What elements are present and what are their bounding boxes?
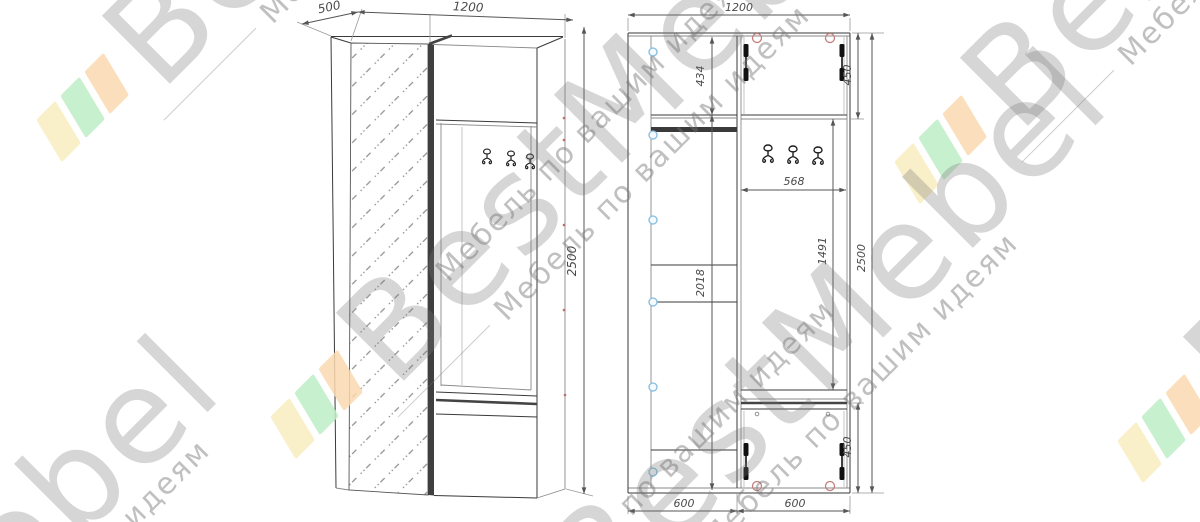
dim-niche-height-label: 1491 bbox=[816, 237, 829, 265]
top-cabinet bbox=[741, 34, 847, 120]
mirror-door bbox=[349, 43, 428, 495]
perspective-dimensions: 500 1200 2500 bbox=[297, 0, 593, 496]
dim-bottom-cabinet-height-label: 450 bbox=[841, 437, 854, 458]
shelf-pin-marks bbox=[649, 48, 657, 476]
technical-drawing-canvas: 500 1200 2500 bbox=[0, 0, 1200, 522]
dim-height-label: 2500 bbox=[855, 244, 868, 272]
coat-hook-icon bbox=[788, 146, 798, 163]
hook-panel bbox=[763, 145, 823, 164]
elevation-dimensions: 1200 434 2018 450 568 1491 2500 450 bbox=[628, 1, 884, 514]
dim-hook-panel-width-label: 568 bbox=[784, 175, 805, 188]
drawing-page: 500 1200 2500 bbox=[0, 0, 1200, 522]
dim-width-label: 1200 bbox=[453, 0, 485, 15]
center-stile bbox=[428, 44, 434, 496]
dim-right-module-width-label: 600 bbox=[785, 497, 806, 510]
dim-top-cabinet-height-label: 450 bbox=[841, 65, 854, 86]
dim-height-label: 2500 bbox=[565, 245, 579, 276]
dim-depth-label: 500 bbox=[317, 0, 343, 16]
coat-hook-icon bbox=[813, 147, 823, 164]
dim-left-interior-height-label: 2018 bbox=[694, 269, 707, 297]
elevation-view: 1200 434 2018 450 568 1491 2500 450 bbox=[628, 1, 884, 514]
bench-and-bottom-cabinet bbox=[741, 390, 847, 491]
bench-shelf bbox=[436, 385, 537, 417]
open-section bbox=[434, 39, 565, 498]
dim-left-module-width-label: 600 bbox=[674, 497, 695, 510]
coat-hook-icon bbox=[763, 145, 773, 162]
dim-shelf-offset-label: 434 bbox=[694, 66, 707, 87]
dim-width-label: 1200 bbox=[725, 1, 753, 14]
perspective-view: 500 1200 2500 bbox=[297, 0, 593, 498]
coat-hook-icon bbox=[483, 149, 535, 169]
hanging-rod bbox=[651, 127, 737, 132]
